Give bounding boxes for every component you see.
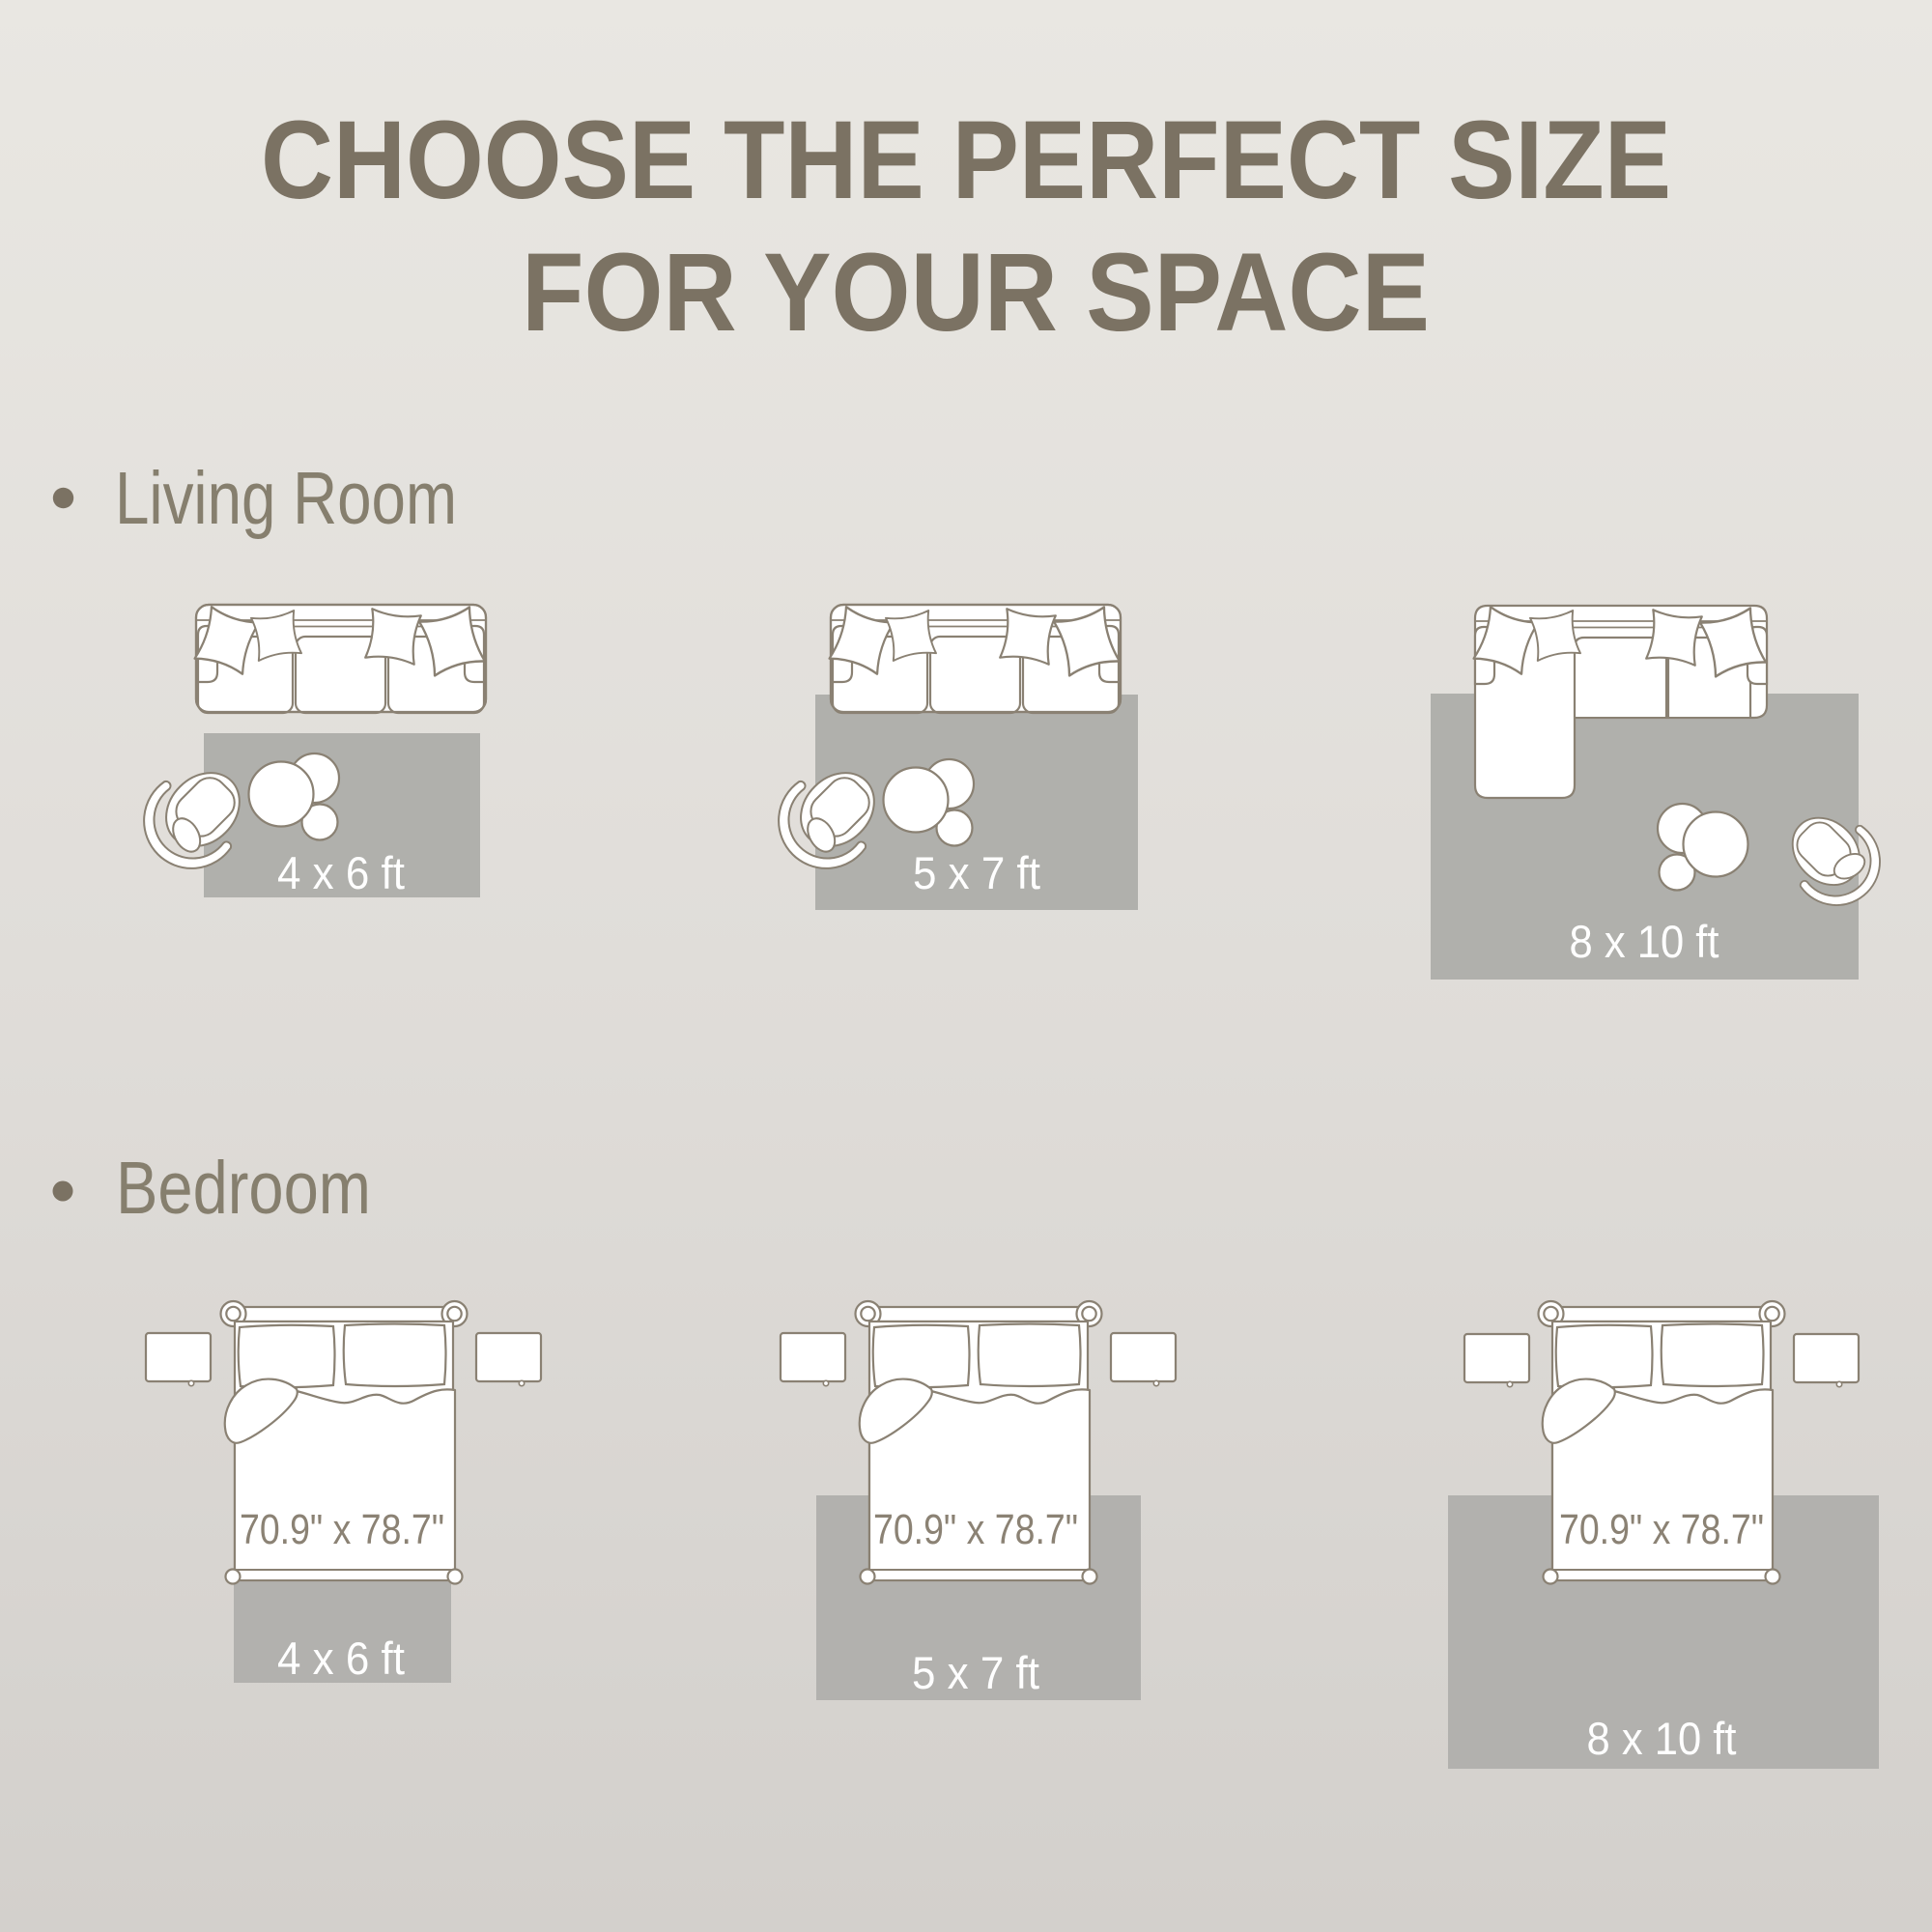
svg-text:Living Room: Living Room: [115, 457, 457, 540]
svg-text:8 x 10 ft: 8 x 10 ft: [1587, 1713, 1737, 1764]
svg-text:4 x 6 ft: 4 x 6 ft: [277, 1633, 405, 1684]
svg-text:70.9" x 78.7": 70.9" x 78.7": [873, 1506, 1078, 1553]
svg-text:70.9" x 78.7": 70.9" x 78.7": [240, 1506, 444, 1553]
svg-text:5 x 7 ft: 5 x 7 ft: [913, 847, 1040, 898]
svg-text:4 x 6 ft: 4 x 6 ft: [277, 847, 405, 898]
svg-text:70.9" x 78.7": 70.9" x 78.7": [1559, 1506, 1764, 1553]
svg-text:CHOOSE THE PERFECT SIZE: CHOOSE THE PERFECT SIZE: [261, 99, 1671, 222]
svg-text:5 x 7 ft: 5 x 7 ft: [912, 1647, 1039, 1698]
svg-text:FOR YOUR SPACE: FOR YOUR SPACE: [522, 231, 1430, 355]
svg-text:Bedroom: Bedroom: [116, 1147, 371, 1230]
svg-text:8 x 10 ft: 8 x 10 ft: [1570, 916, 1719, 967]
